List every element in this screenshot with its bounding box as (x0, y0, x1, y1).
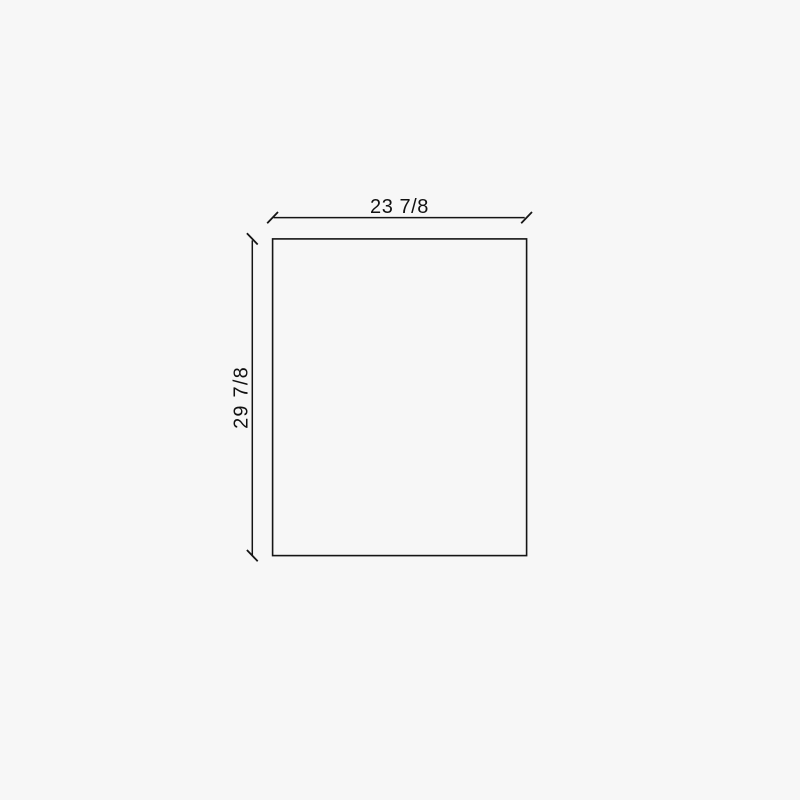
svg-text:23 7/8: 23 7/8 (370, 196, 429, 218)
svg-text:29 7/8: 29 7/8 (231, 366, 253, 429)
